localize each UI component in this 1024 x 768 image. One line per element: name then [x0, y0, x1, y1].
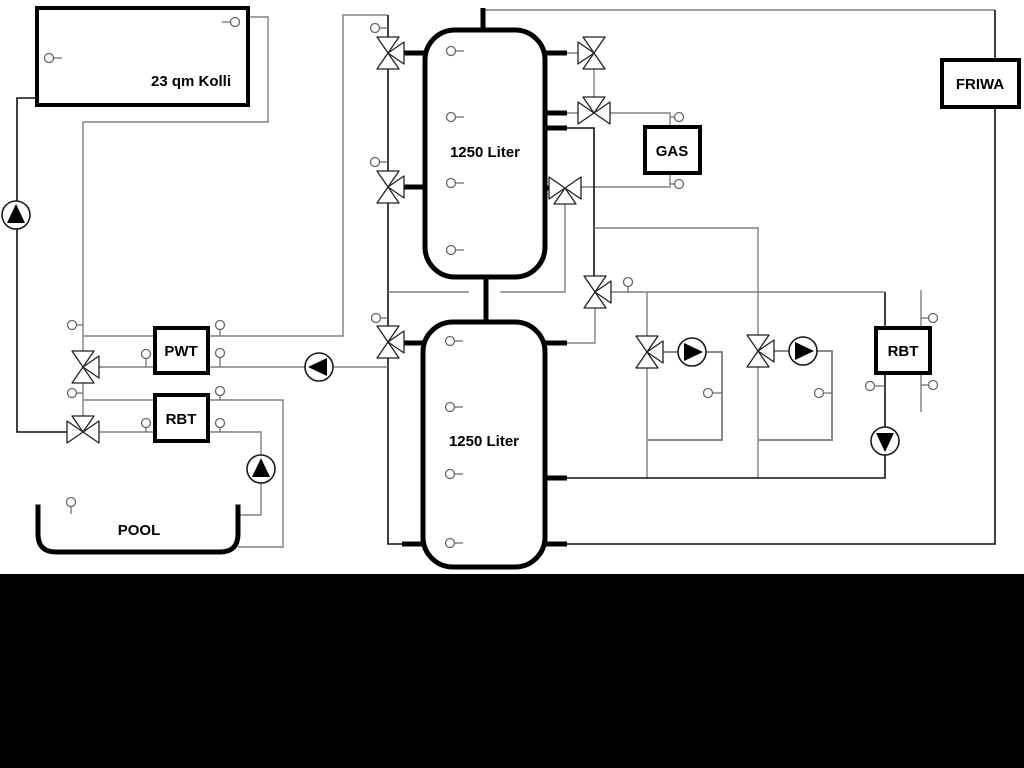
valve-tank2-link-pipe — [567, 308, 595, 343]
rbt-primary-sensor — [866, 382, 886, 391]
valve-sensor-3 — [372, 314, 389, 323]
solar-flow-sensor — [68, 321, 84, 330]
pwt-out-sensor — [216, 349, 225, 368]
rbt-secondary-bottom-sensor — [921, 381, 938, 390]
solar-return-pipe — [17, 98, 67, 432]
pool-hx-return-pipe — [99, 432, 261, 515]
schematic-canvas: 23 qm Kolli 1250 Liter 1250 Liter GAS FR… — [0, 0, 1024, 768]
collector-label: 23 qm Kolli — [151, 73, 231, 90]
pool-primary-valve — [67, 416, 99, 443]
rbt-pool-label: RBT — [166, 411, 197, 428]
pool-label: POOL — [118, 522, 161, 539]
tank1-mid-charge-valve — [377, 171, 404, 203]
friwa-label: FRIWA — [956, 76, 1004, 93]
solar-pump — [2, 201, 30, 229]
gas-flow-sensor — [670, 113, 684, 122]
valve-sensor-1 — [371, 24, 389, 33]
solar-mid-sensor — [68, 389, 84, 398]
hydraulic-schematic: 23 qm Kolli 1250 Liter 1250 Liter GAS FR… — [0, 0, 1024, 768]
valve-sensor-2 — [371, 158, 389, 167]
tank1-top-charge-valve — [377, 37, 404, 69]
pool-hx-out-sensor — [216, 419, 225, 433]
heating-flow-valve — [584, 276, 611, 308]
gas-return-valve — [549, 177, 581, 204]
rbt-return-pump — [871, 427, 899, 455]
tank1-label: 1250 Liter — [450, 144, 520, 161]
gas-label: GAS — [656, 143, 689, 160]
pool-pump — [247, 455, 275, 483]
pwt-in-sensor — [142, 350, 151, 368]
circuit2-return-sensor — [815, 389, 833, 398]
heating-branch-pipe — [594, 228, 758, 292]
rbt-secondary-top-sensor — [921, 314, 938, 323]
tank2-label: 1250 Liter — [449, 433, 519, 450]
gas-return-sensor — [670, 180, 684, 189]
pool-hx-in-sensor — [142, 419, 151, 433]
tank1-top-outlet-valve — [578, 37, 605, 69]
pwt-top-sensor — [216, 321, 225, 337]
rbt-heating-label: RBT — [888, 343, 919, 360]
pool-hx-top-sensor — [216, 387, 225, 401]
pwt-label: PWT — [164, 343, 197, 360]
heating-flow-sensor — [624, 278, 633, 293]
bottom-black-area — [0, 574, 1024, 768]
heating-return-pipe — [567, 292, 885, 478]
heating-circuit-2-pump — [789, 337, 817, 365]
gas-flow-valve — [578, 97, 610, 124]
tank2-charge-valve — [377, 326, 404, 358]
heating-circuit-1-valve — [636, 336, 663, 368]
pwt-primary-valve — [72, 351, 99, 383]
solar-collector-box — [37, 8, 248, 105]
circuit1-return-sensor — [704, 389, 723, 398]
charge-manifold-pipe — [388, 15, 402, 544]
friwa-pipe — [567, 10, 995, 544]
heating-circuit-1-pump — [678, 338, 706, 366]
pool-water-sensor — [67, 498, 76, 515]
buffer-charge-pump — [305, 353, 333, 381]
heating-circuit-2-valve — [747, 335, 774, 367]
